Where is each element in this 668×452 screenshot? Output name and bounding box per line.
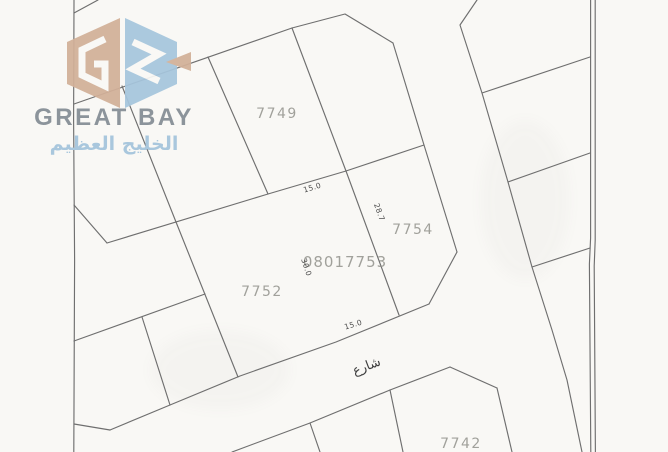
plot-label-08017753: 08017753 [303,253,387,271]
map-border-left [74,0,75,452]
dimension-label-east-28-7: 28.7 [372,202,387,222]
plot-label-7754: 7754 [392,222,434,238]
dimension-label-bottom-15: 15.0 [343,318,363,332]
parcel-lines [74,0,596,452]
plot-label-7742: 7742 [440,436,482,452]
street-label: شارع [351,355,383,379]
cadastral-map-screenshot: 7749 7754 7752 08017753 7742 15.0 28.7 3… [0,0,668,452]
plot-label-7752: 7752 [241,284,283,300]
map-border-right-inner [589,0,590,452]
plot-label-7749: 7749 [256,106,298,122]
map-border-right-outer [594,0,595,452]
plot-map: 7749 7754 7752 08017753 7742 15.0 28.7 3… [0,0,668,452]
plot-number-labels: 7749 7754 7752 08017753 7742 [241,106,482,452]
